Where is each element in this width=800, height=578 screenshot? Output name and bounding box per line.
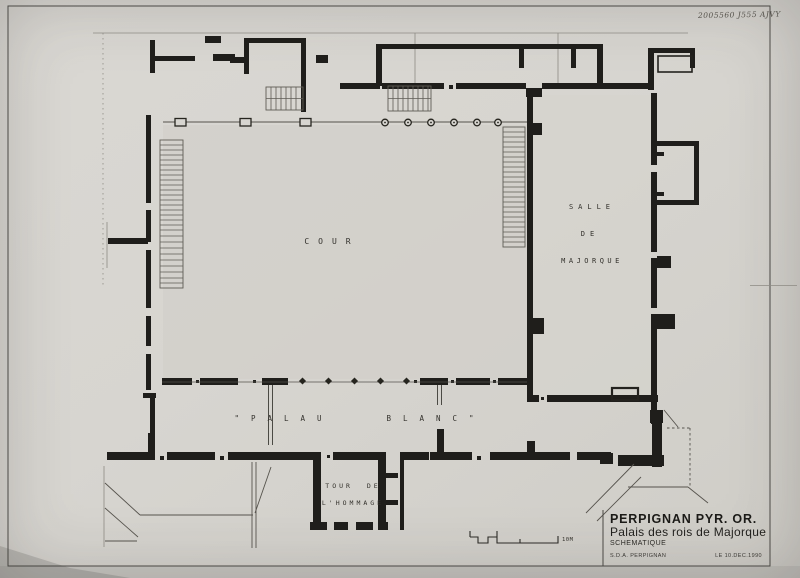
staircase-north-left: [266, 87, 303, 110]
palau-blanc-label-left: "PALAU: [234, 414, 333, 423]
title-block-title: Palais des rois de Majorque: [610, 525, 766, 539]
tour-hommage-label-line1: TOUR DE: [325, 482, 380, 490]
photo-edge-shadow: [0, 546, 800, 578]
title-block-agency: S.D.A. PERPIGNAN: [610, 553, 666, 559]
salle-label-line2: DE: [581, 230, 599, 238]
salle-label-line3: MAJORQUE: [561, 257, 623, 265]
title-block-region: PERPIGNAN PYR. OR.: [610, 512, 757, 526]
title-block-date: LE 10.DEC.1990: [715, 553, 762, 559]
scale-bar: [470, 531, 558, 543]
title-block: PERPIGNAN PYR. OR. Palais des rois de Ma…: [603, 510, 766, 566]
salle-label-line1: SALLE: [569, 203, 615, 211]
salle-area: [533, 95, 651, 395]
courtyard-area: [163, 125, 527, 379]
tour-hommage-walls: [310, 452, 404, 530]
handwritten-reference: 2005560 J555 AJVY: [697, 10, 781, 20]
tour-hommage-label-line2: L'HOMMAGE: [322, 499, 384, 507]
scanned-plan-photo: 10M COUR SALLE DE MAJORQUE "PALAU BLANC"…: [0, 0, 800, 578]
staircase-north-right: [388, 86, 431, 111]
glacis-southwest: [105, 462, 271, 548]
title-block-subtitle: SCHEMATIQUE: [610, 540, 666, 547]
scale-label: 10M: [562, 537, 574, 543]
courtyard-label: COUR: [304, 237, 359, 246]
palau-blanc-label-right: BLANC": [386, 414, 485, 423]
floor-plan-drawing: 10M COUR SALLE DE MAJORQUE "PALAU BLANC"…: [0, 0, 800, 578]
